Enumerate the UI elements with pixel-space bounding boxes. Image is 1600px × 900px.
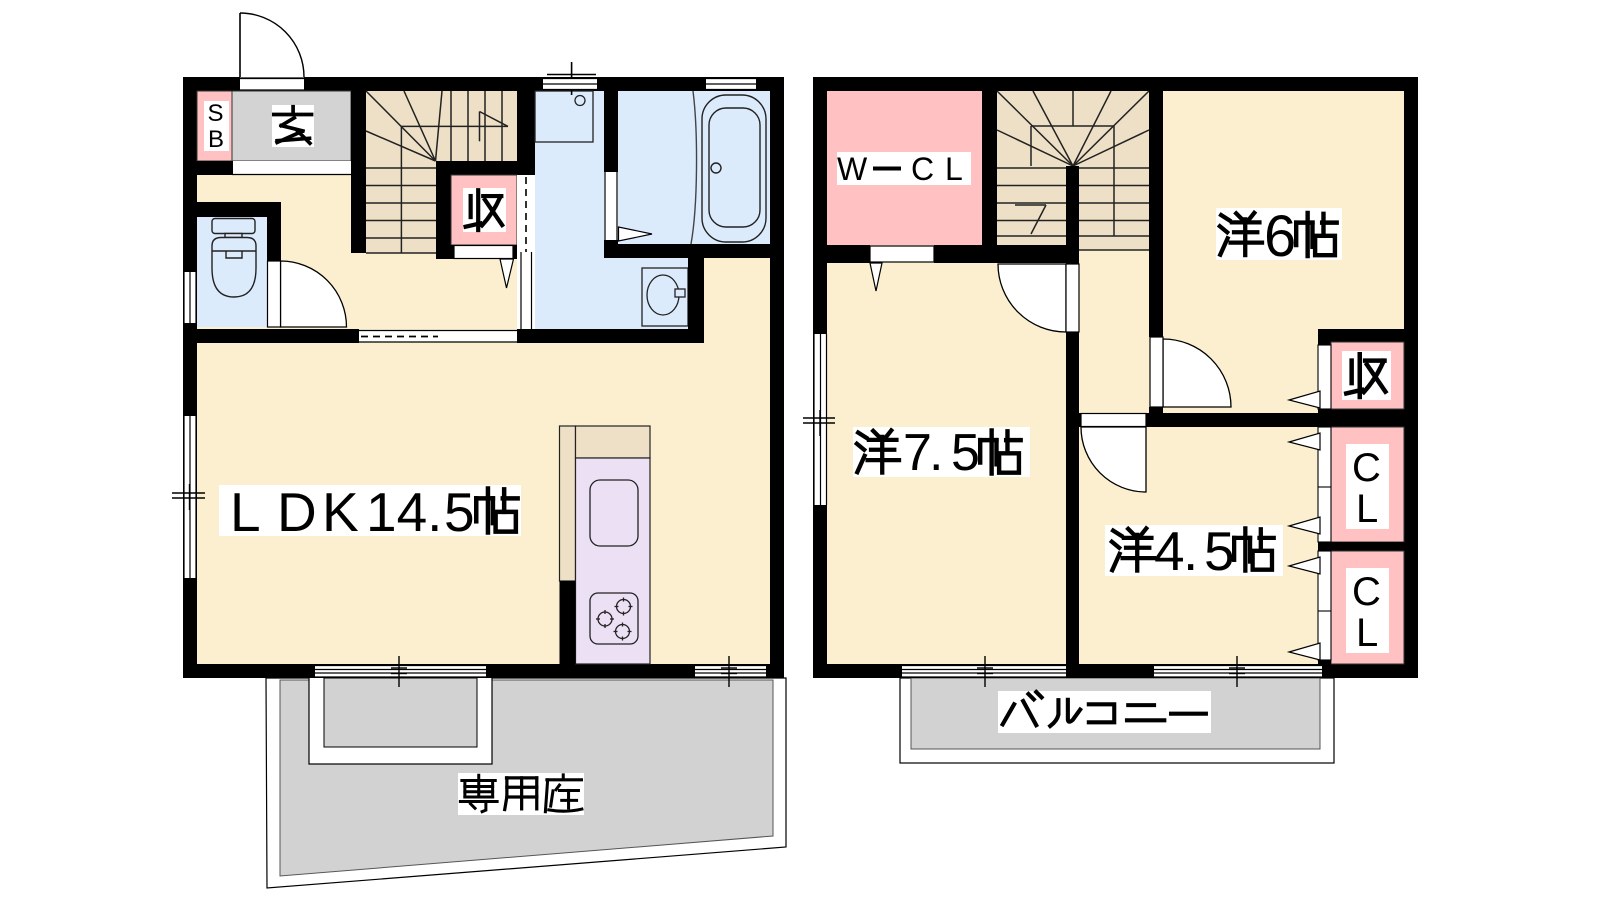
svg-text:.: . <box>1183 520 1198 582</box>
svg-text:5: 5 <box>444 481 475 543</box>
svg-text:L: L <box>1356 487 1378 531</box>
svg-text:5: 5 <box>951 424 980 482</box>
svg-text:W: W <box>837 151 868 187</box>
svg-text:L: L <box>1356 611 1378 655</box>
svg-text:S: S <box>208 100 224 127</box>
svg-text:4: 4 <box>1154 520 1185 582</box>
svg-text:C: C <box>1352 446 1381 490</box>
svg-text:L: L <box>230 481 261 543</box>
svg-text:C: C <box>1352 570 1381 614</box>
svg-text:7: 7 <box>903 424 932 482</box>
svg-text:D: D <box>277 481 317 543</box>
svg-text:L: L <box>945 151 963 187</box>
svg-text:.: . <box>929 424 943 482</box>
svg-text:6: 6 <box>1264 204 1296 269</box>
svg-text:C: C <box>911 151 934 187</box>
svg-text:K: K <box>322 481 359 543</box>
svg-text:14.: 14. <box>366 481 442 543</box>
svg-text:B: B <box>208 126 224 153</box>
svg-text:5: 5 <box>1204 520 1235 582</box>
